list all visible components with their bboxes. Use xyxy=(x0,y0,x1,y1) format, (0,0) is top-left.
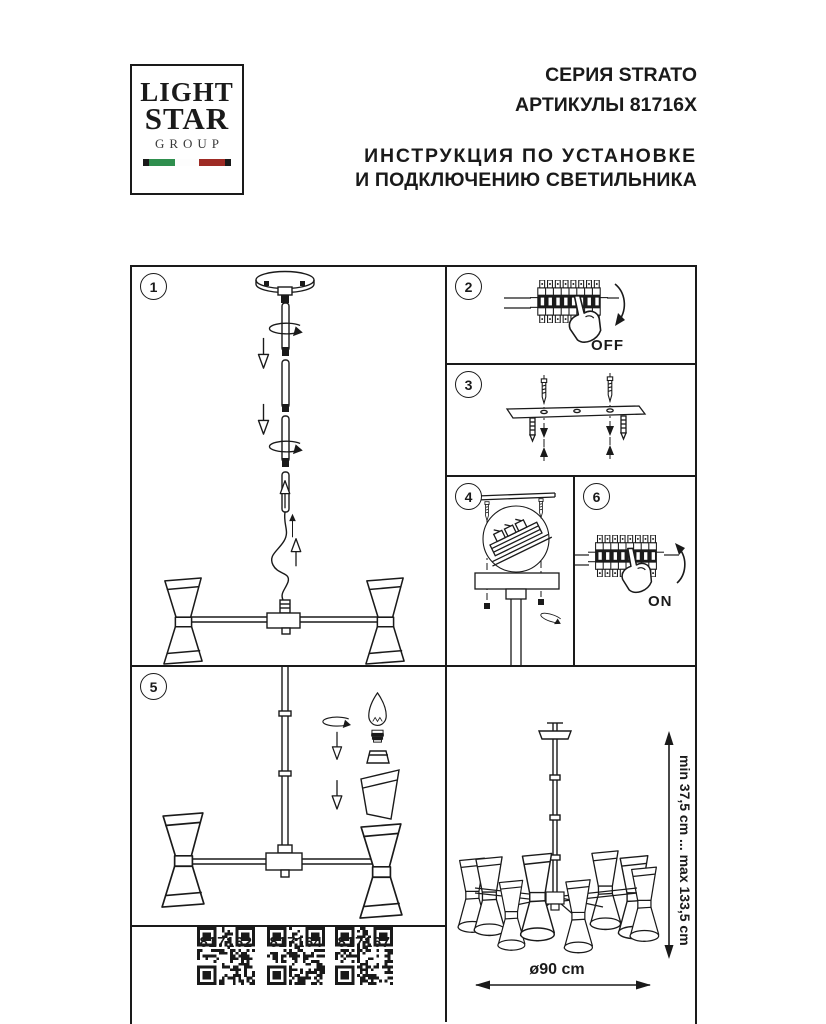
instruction-title-block: ИНСТРУКЦИЯ ПО УСТАНОВКЕ И ПОДКЛЮЧЕНИЮ СВ… xyxy=(355,144,697,192)
series-name: СЕРИЯ STRATO xyxy=(515,60,697,90)
italian-flag-stripe xyxy=(143,159,231,166)
instruction-grid: 1 xyxy=(130,265,697,1024)
step-1-panel: 1 xyxy=(132,267,447,667)
step-4-number: 4 xyxy=(455,483,482,510)
rotate-up-arrowhead xyxy=(675,543,685,555)
height-range-label: min 37,5 cm ... max 133,5 cm xyxy=(677,755,693,946)
step-6-number: 6 xyxy=(583,483,610,510)
step-5-bulb-shade-illustration xyxy=(132,667,447,927)
step-6-panel: 6 ON xyxy=(575,477,695,667)
step-5-panel: 5 xyxy=(132,667,447,927)
step-4-panel: 4 xyxy=(447,477,575,667)
qr-code-817167 xyxy=(335,927,393,985)
step-2-power-off-illustration xyxy=(447,267,695,365)
breaker-on-label: ON xyxy=(648,593,673,610)
series-title-block: СЕРИЯ STRATO АРТИКУЛЫ 81716X xyxy=(515,60,697,120)
step-3-panel: 3 xyxy=(447,365,695,477)
instruction-title-line2: И ПОДКЛЮЧЕНИЮ СВЕТИЛЬНИКА xyxy=(355,168,697,192)
step-1-rod-assembly-illustration xyxy=(132,267,447,667)
step-3-number: 3 xyxy=(455,371,482,398)
final-dimensions-panel: min 37,5 cm ... max 133,5 cm ø90 cm xyxy=(447,667,695,1022)
lightstar-logo: LIGHT STAR GROUP xyxy=(130,64,244,195)
step-2-number: 2 xyxy=(455,273,482,300)
logo-word-star: STAR xyxy=(132,105,242,133)
diameter-label: ø90 cm xyxy=(502,961,612,979)
qr-code-817162 xyxy=(197,927,255,985)
qr-code-817164 xyxy=(267,927,325,985)
step-3-mounting-bracket-illustration xyxy=(447,365,695,477)
instruction-sheet: LIGHT STAR GROUP СЕРИЯ STRATO АРТИКУЛЫ 8… xyxy=(0,0,826,1024)
logo-word-group: GROUP xyxy=(137,136,242,152)
qr-codes-panel: 817162 817164 817167 xyxy=(132,927,447,1022)
instruction-title-line1: ИНСТРУКЦИЯ ПО УСТАНОВКЕ xyxy=(355,144,697,168)
breaker-off-label: OFF xyxy=(591,337,624,354)
article-numbers: АРТИКУЛЫ 81716X xyxy=(515,90,697,120)
step-5-number: 5 xyxy=(140,673,167,700)
step-1-number: 1 xyxy=(140,273,167,300)
rotate-down-arrowhead xyxy=(615,313,625,326)
step-2-panel: 2 OFF xyxy=(447,267,695,365)
